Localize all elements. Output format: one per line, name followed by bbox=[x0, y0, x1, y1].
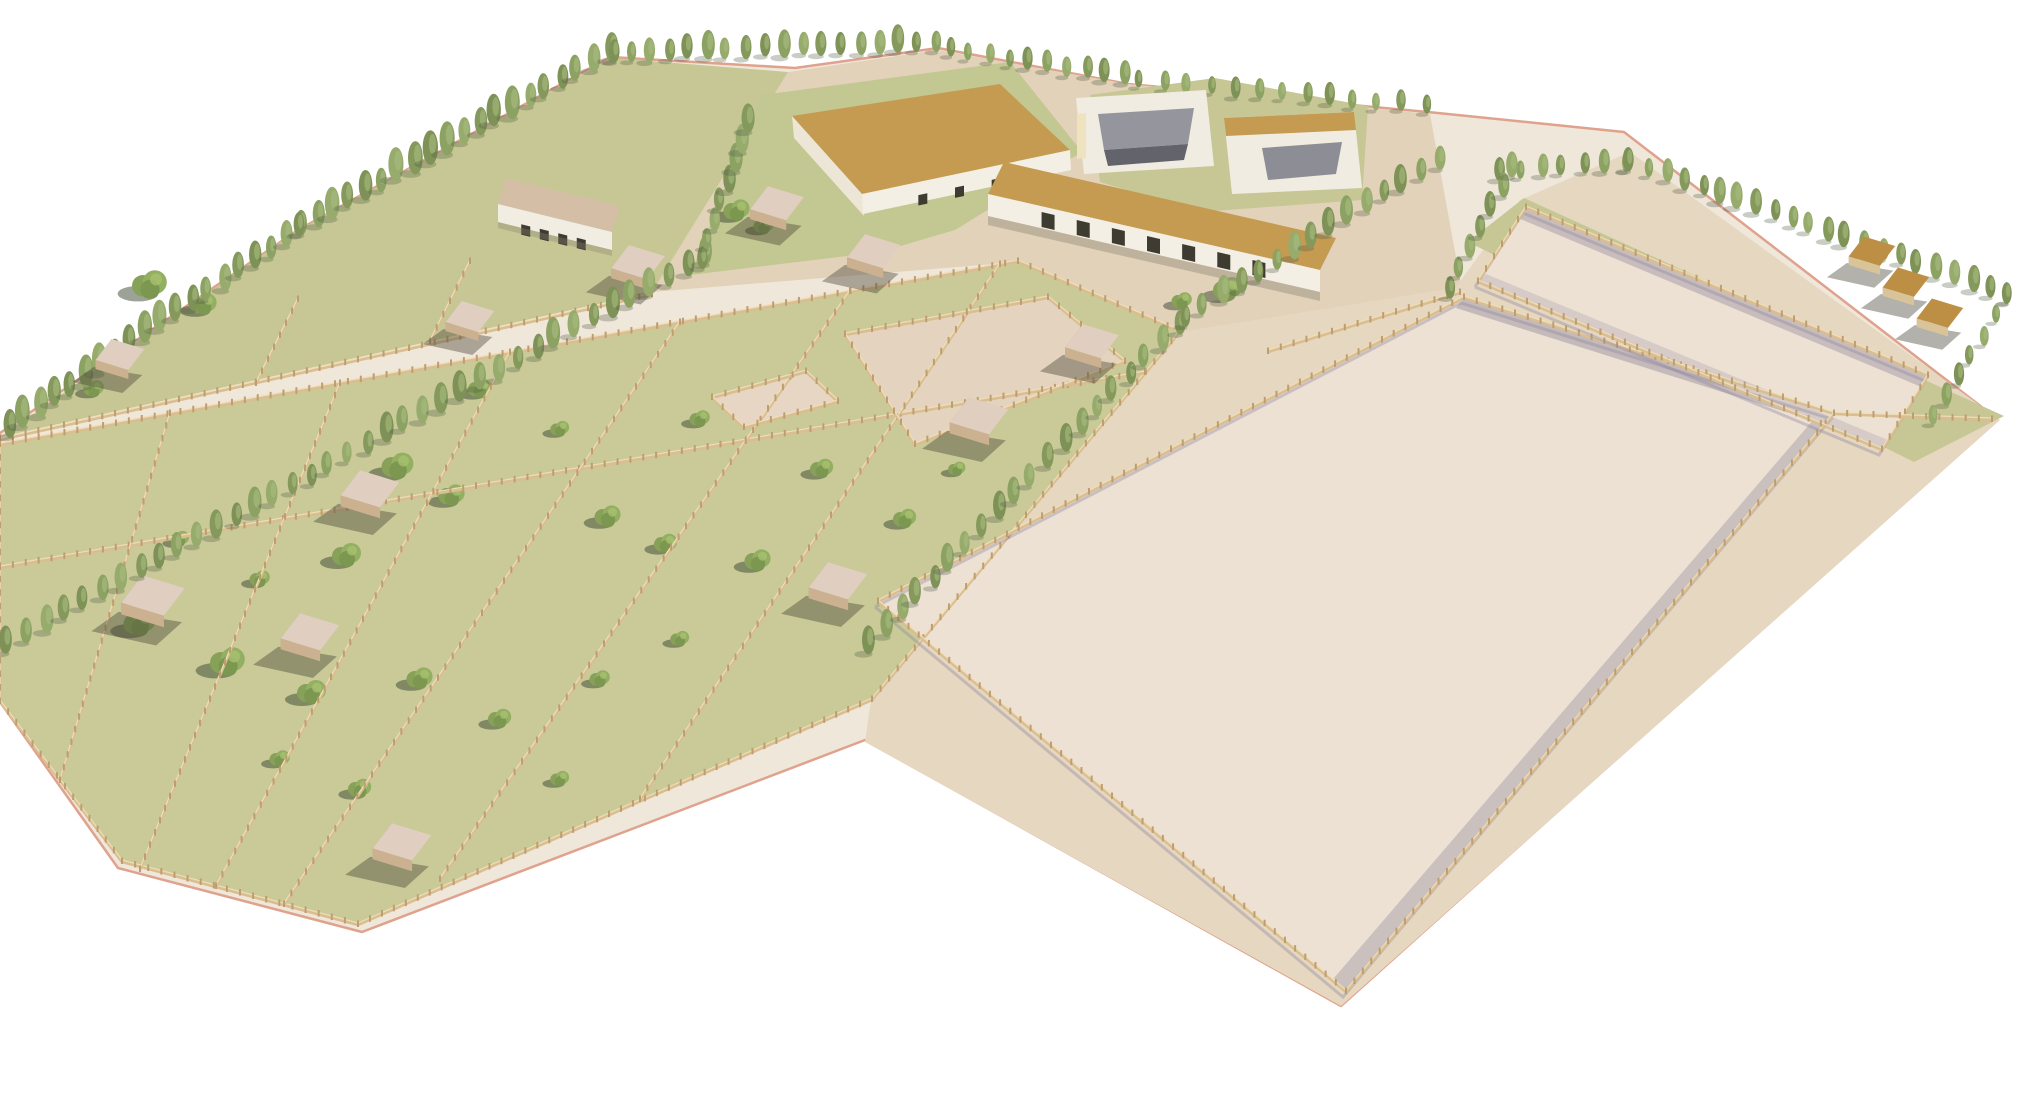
render-viewport bbox=[0, 0, 2026, 1096]
barn2-inner-roof-slope bbox=[1262, 142, 1342, 180]
barn-inner-roof-slope bbox=[1098, 108, 1194, 150]
barn-door-band bbox=[1077, 113, 1086, 159]
paddock-tree bbox=[118, 270, 167, 301]
render-canvas bbox=[0, 0, 2026, 1096]
